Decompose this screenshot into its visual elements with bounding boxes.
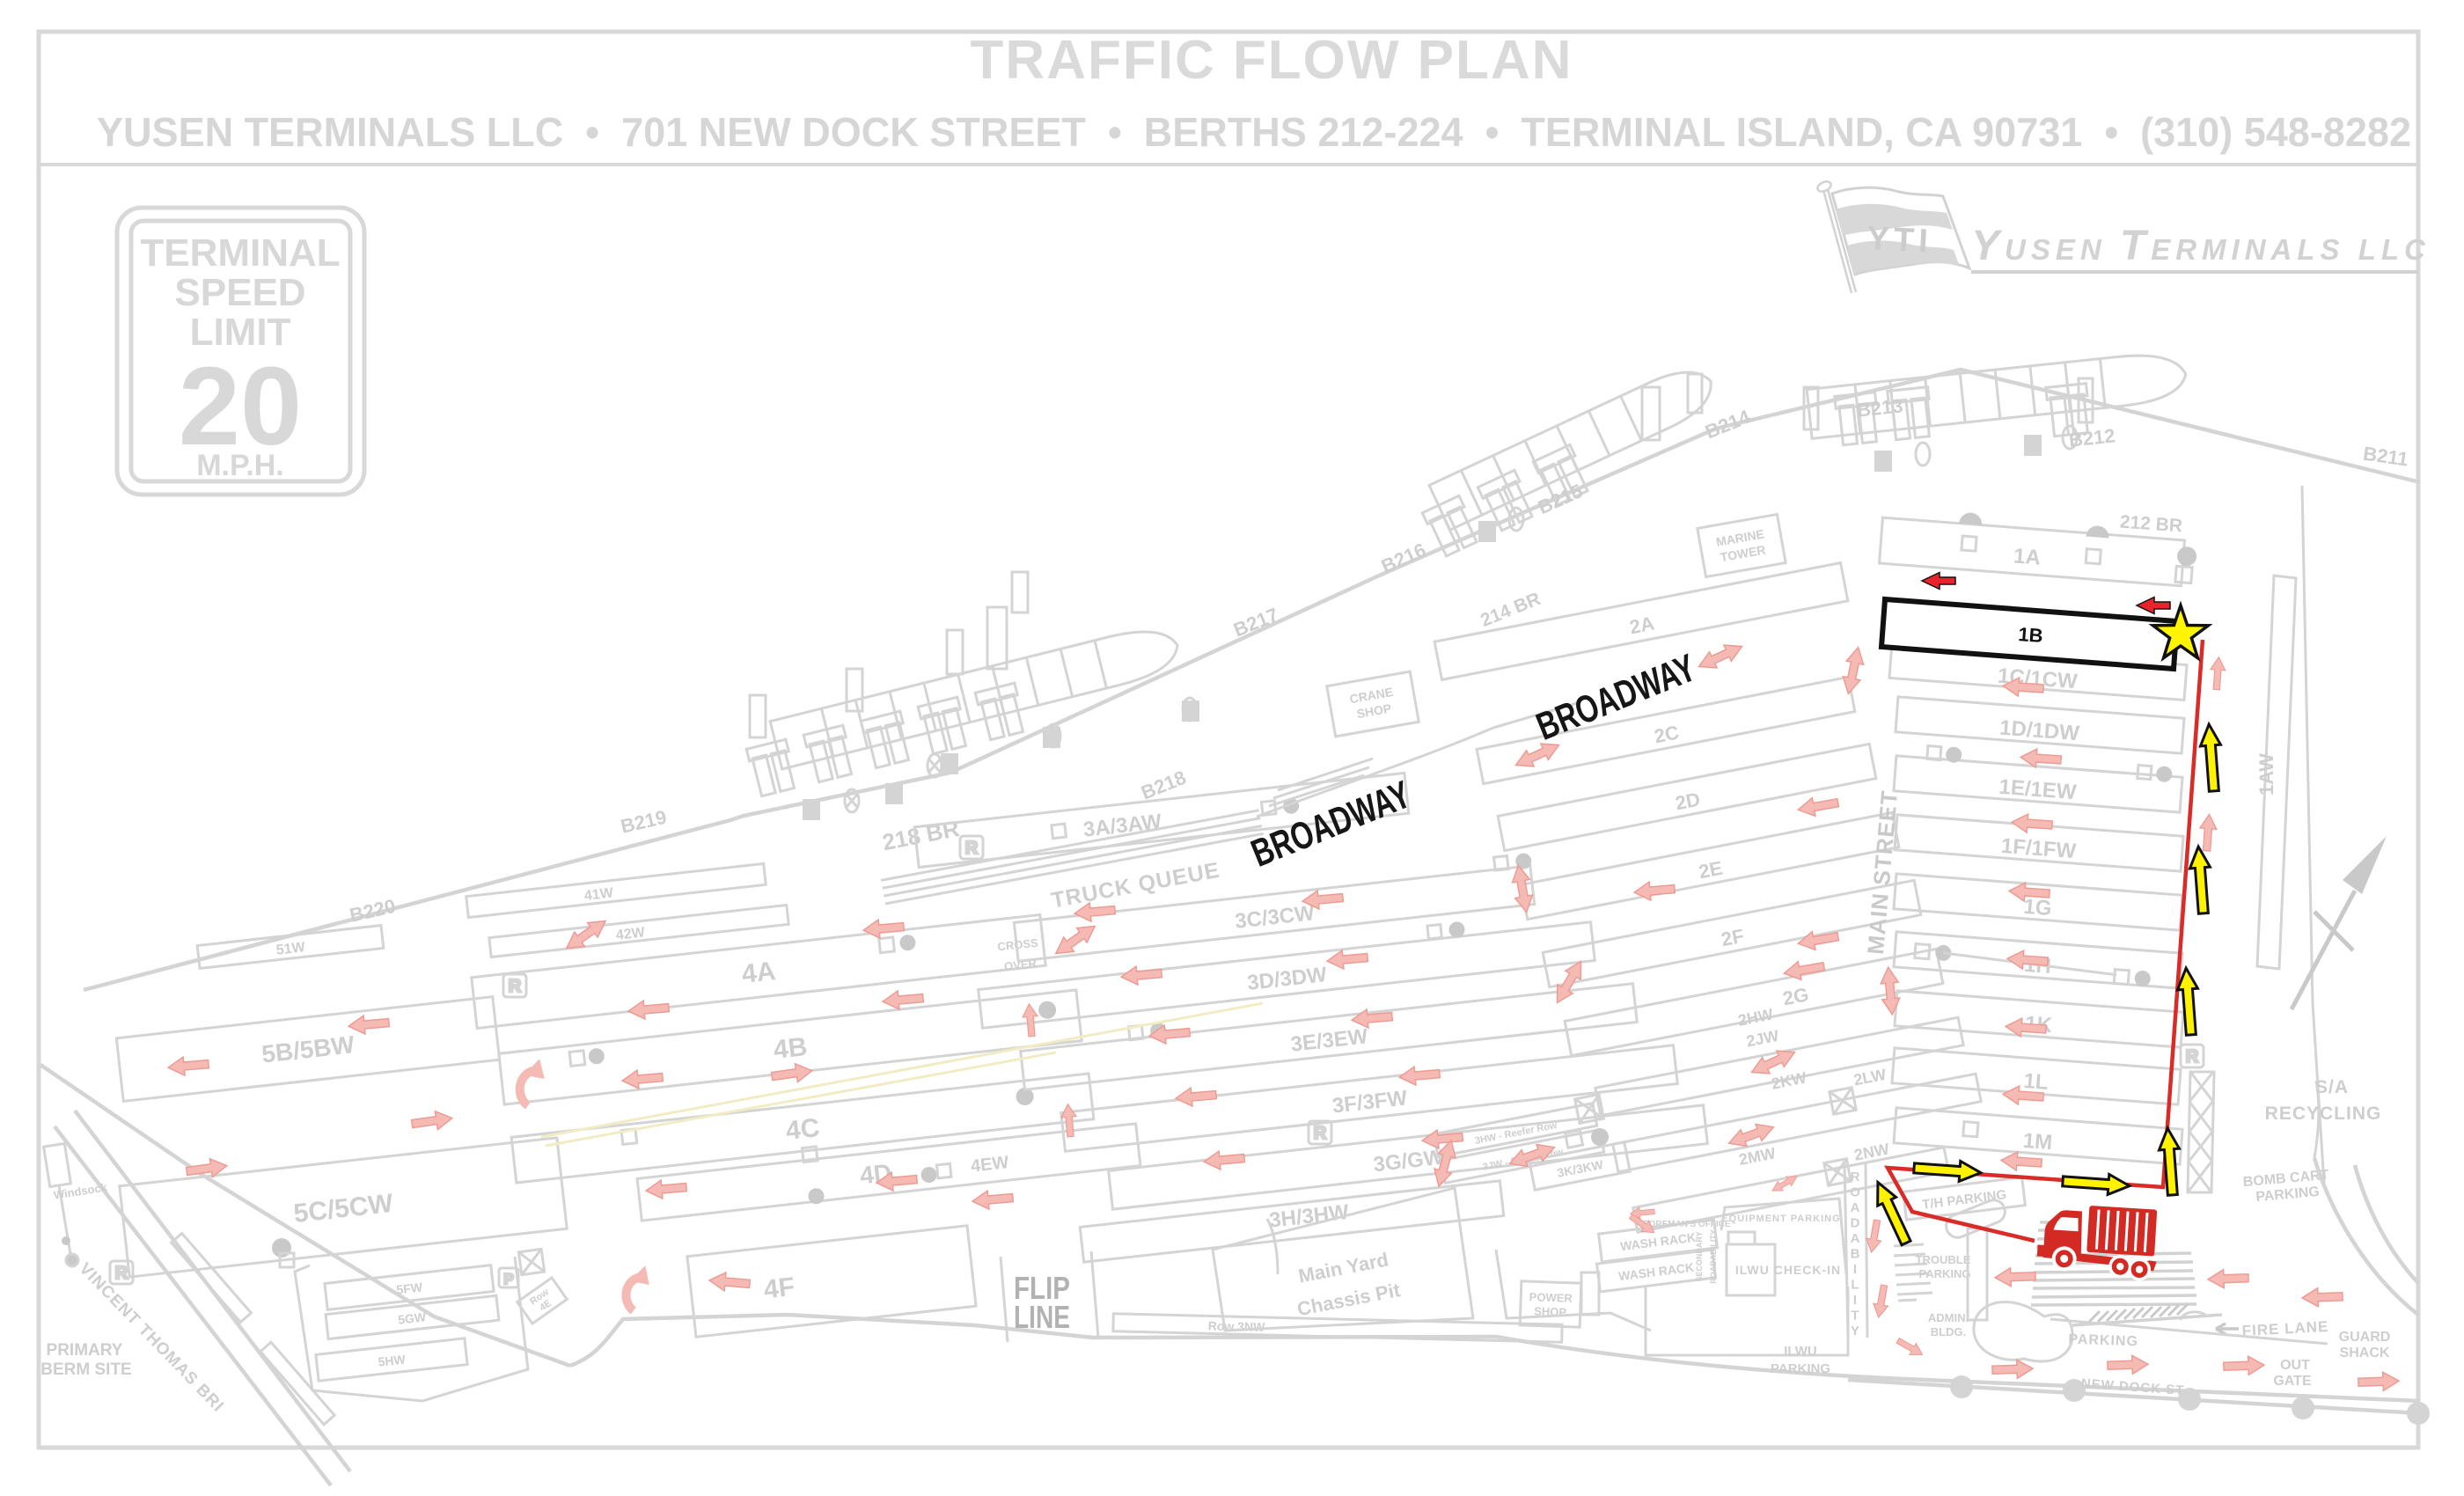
svg-text:ADMIN.: ADMIN. [1928,1311,1969,1324]
svg-text:EQUIPMENT PARKING: EQUIPMENT PARKING [1721,1214,1840,1224]
svg-text:R: R [1314,1124,1327,1143]
svg-text:2D: 2D [1674,788,1702,814]
svg-text:YUSEN TERMINALS LLC • 701 NE: YUSEN TERMINALS LLC • 701 NEW DOCK STREE… [97,109,2411,155]
svg-text:2E: 2E [1697,857,1724,884]
svg-text:4C: 4C [784,1113,821,1146]
svg-text:1A: 1A [2013,544,2042,569]
svg-text:POWER: POWER [1529,1290,1573,1305]
svg-text:ROADABILITY: ROADABILITY [1709,1229,1718,1284]
svg-text:1G: 1G [2023,895,2053,920]
svg-text:PARKING: PARKING [1771,1361,1830,1376]
svg-text:M.P.H.: M.P.H. [196,449,284,482]
svg-text:YTI: YTI [1866,220,1933,260]
svg-text:ROADABILITY: ROADABILITY [1850,1170,1860,1338]
svg-text:TERMINAL: TERMINAL [140,231,340,275]
svg-text:TRAFFIC FLOW PLAN: TRAFFIC FLOW PLAN [971,30,1573,91]
svg-text:S/A: S/A [2315,1077,2349,1097]
svg-text:SECONDARY: SECONDARY [1695,1231,1704,1281]
svg-text:TROUBLE: TROUBLE [1916,1253,1971,1266]
svg-text:ILWU CHECK-IN: ILWU CHECK-IN [1735,1263,1841,1277]
svg-text:R: R [965,839,979,858]
svg-text:PARKING: PARKING [1919,1267,1971,1280]
svg-text:2C: 2C [1653,721,1681,747]
svg-text:SHACK: SHACK [2340,1346,2390,1360]
svg-text:LINE: LINE [1014,1299,1070,1335]
svg-text:ILWU: ILWU [1784,1344,1817,1359]
svg-text:R: R [2186,1047,2199,1067]
svg-text:2F: 2F [1720,925,1746,950]
svg-text:1AW: 1AW [2255,753,2277,796]
svg-text:1M: 1M [2022,1129,2053,1155]
svg-text:BERM SITE: BERM SITE [40,1360,131,1379]
svg-text:BLDG.: BLDG. [1931,1325,1966,1338]
svg-text:4A: 4A [740,957,777,989]
svg-text:OUT: OUT [2280,1358,2310,1373]
svg-text:4F: 4F [762,1272,796,1305]
svg-text:R: R [115,1264,128,1283]
svg-text:PRIMARY: PRIMARY [47,1341,123,1360]
svg-text:1L: 1L [2023,1069,2050,1095]
svg-text:4B: 4B [772,1032,809,1065]
svg-text:PARKING: PARKING [2068,1332,2138,1350]
svg-text:2A: 2A [1628,612,1656,638]
svg-text:Row 3NW: Row 3NW [1208,1318,1266,1334]
svg-text:GUARD: GUARD [2339,1330,2391,1345]
svg-text:R: R [509,977,522,996]
svg-text:FOREMAN'S OFFICE: FOREMAN'S OFFICE [1643,1220,1730,1229]
svg-text:1B: 1B [2018,623,2044,647]
svg-text:RECYCLING: RECYCLING [2265,1104,2382,1124]
svg-text:P: P [503,1271,513,1287]
svg-text:GATE: GATE [2273,1374,2312,1389]
svg-text:SPEED: SPEED [174,271,305,314]
